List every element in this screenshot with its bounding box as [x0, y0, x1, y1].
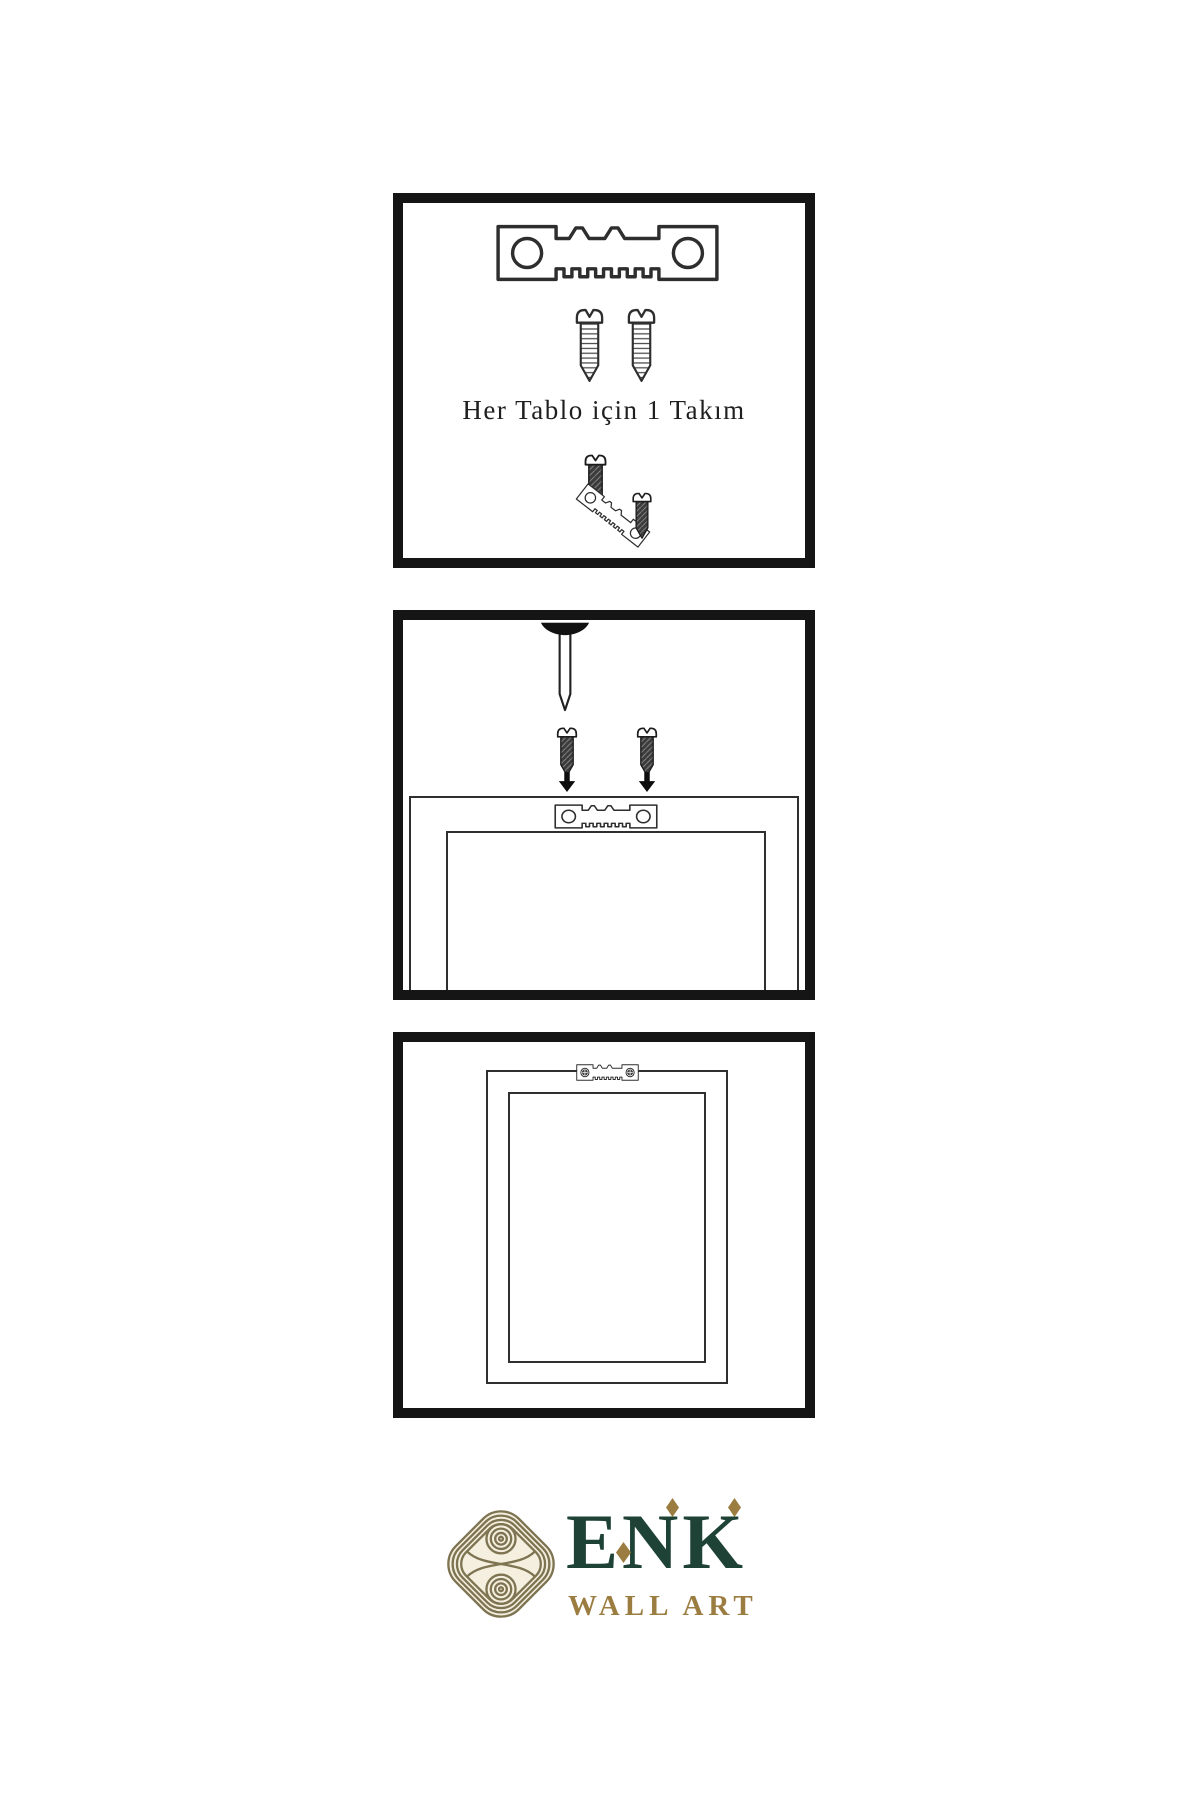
diamond-icon [616, 1542, 631, 1563]
panel-hardware-kit: Her Tablo için 1 Takım [393, 193, 815, 568]
diamond-icon [666, 1498, 679, 1517]
dark-screw-icon [555, 726, 579, 777]
wall-nail-icon [540, 618, 590, 720]
sawtooth-hanger-icon [494, 224, 721, 282]
dark-screw-icon [631, 491, 653, 540]
knot-icon [437, 1495, 565, 1633]
frame-back-inner [446, 831, 766, 996]
sawtooth-hanger-icon [554, 804, 658, 829]
screw-icon [573, 307, 606, 383]
instruction-sheet: Her Tablo için 1 Takım ENK WALL ART [0, 0, 1200, 1800]
diamond-icon [728, 1498, 741, 1517]
sawtooth-hanger-screwed-icon [576, 1064, 639, 1081]
brand-subtitle: WALL ART [568, 1590, 798, 1622]
brand-logo: ENK WALL ART [430, 1490, 800, 1640]
panel-frame-mounted [393, 1032, 815, 1418]
frame-back-inner [508, 1092, 706, 1363]
down-arrow-icon [638, 772, 656, 792]
screw-icon [625, 307, 658, 383]
kit-caption: Her Tablo için 1 Takım [403, 395, 805, 426]
brand-name: ENK [566, 1502, 796, 1582]
panel-wall-mounting [393, 610, 815, 1000]
down-arrow-icon [558, 772, 576, 792]
dark-screw-icon [635, 726, 659, 777]
